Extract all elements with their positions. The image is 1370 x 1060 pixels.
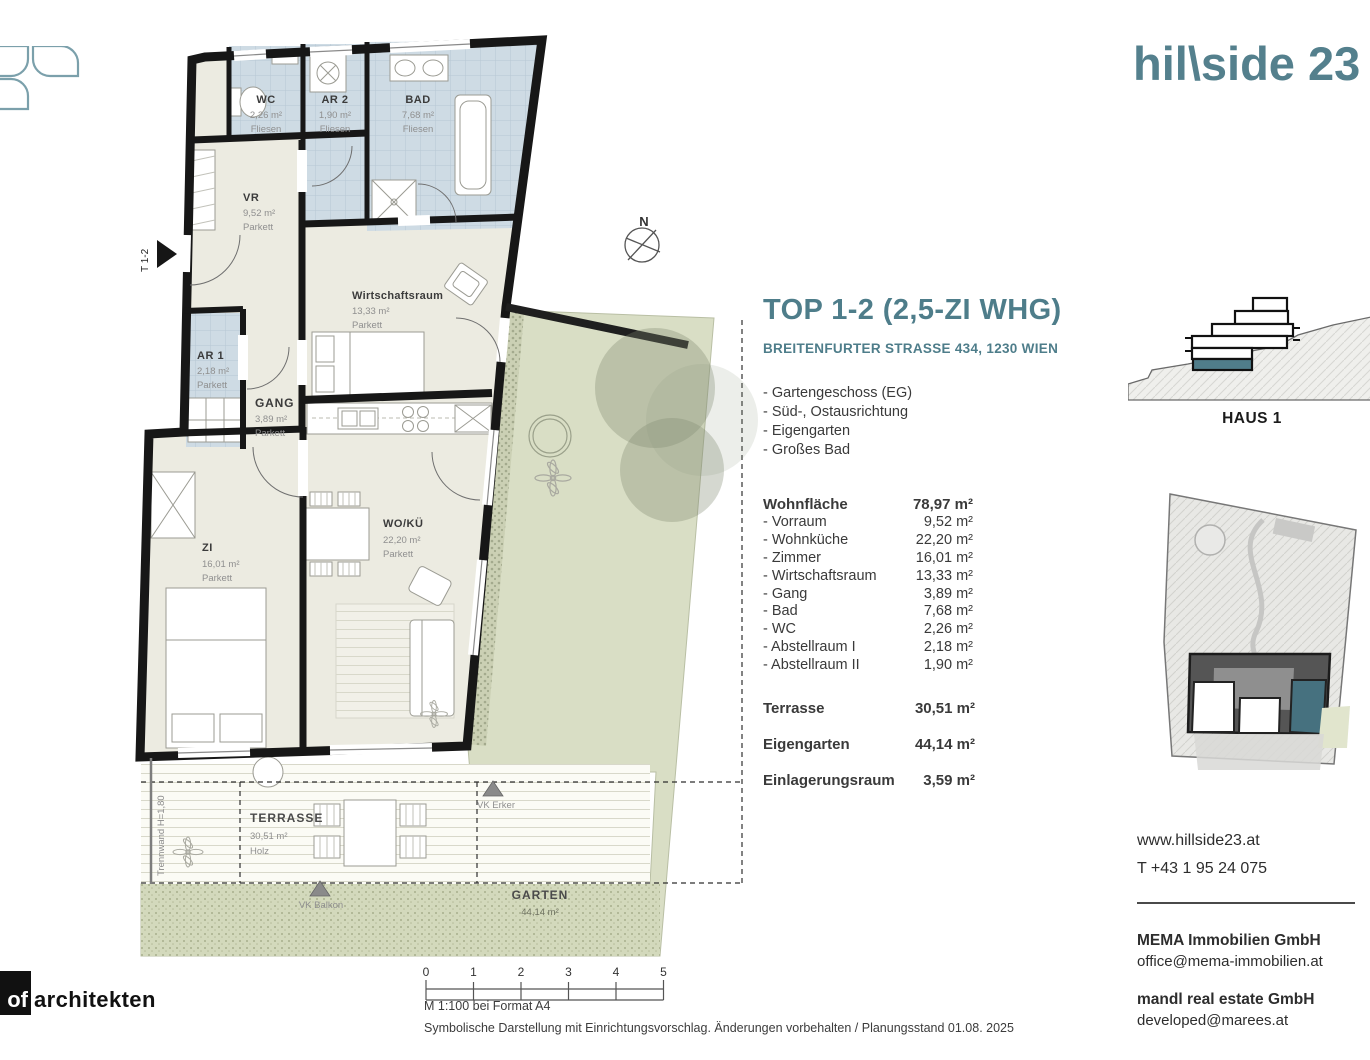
architect-logo-box: of — [0, 971, 31, 1015]
svg-text:Fliesen: Fliesen — [320, 124, 351, 135]
svg-text:Parkett: Parkett — [243, 222, 273, 233]
unit-title: TOP 1-2 (2,5-ZI WHG) — [763, 294, 1095, 327]
website: www.hillside23.at — [1137, 832, 1370, 850]
fridge — [455, 405, 491, 432]
floor-box — [1212, 324, 1293, 336]
unit-details-panel: TOP 1-2 (2,5-ZI WHG) BREITENFURTER STRAS… — [763, 294, 1095, 808]
svg-text:GANG: GANG — [255, 396, 294, 410]
svg-text:Holz: Holz — [250, 846, 269, 857]
svg-text:2,18 m²: 2,18 m² — [197, 366, 229, 377]
area-row: - Wohnküche22,20 m² — [763, 532, 973, 550]
svg-text:Parkett: Parkett — [352, 320, 382, 331]
svg-text:3: 3 — [565, 965, 572, 979]
svg-text:1,90 m²: 1,90 m² — [319, 110, 351, 121]
svg-text:0: 0 — [423, 965, 430, 979]
unit-address: BREITENFURTER STRASSE 434, 1230 WIEN — [763, 341, 1095, 356]
feature-item: - Großes Bad — [763, 441, 1095, 460]
svg-text:ZI: ZI — [202, 542, 213, 554]
trennwand-label: Trennwand H=1,80 — [156, 795, 167, 876]
kitchen-counter — [307, 403, 492, 434]
unit-shape — [1239, 698, 1280, 733]
hillside23-logo: hil\side 23 — [1133, 36, 1360, 91]
highlighted-floor — [1193, 359, 1252, 370]
svg-text:VK Erker: VK Erker — [477, 800, 515, 811]
unit-shape — [1192, 682, 1234, 732]
floor-box — [1235, 311, 1288, 324]
architect-logo: of architekten — [0, 971, 156, 1015]
haus1-section-diagram — [1128, 288, 1370, 406]
floorplan-drawing: N T 1-2 VK Erker VK Balkon Trennwand H=1… — [0, 0, 760, 1060]
svg-text:22,20 m²: 22,20 m² — [383, 535, 421, 546]
svg-text:Fliesen: Fliesen — [403, 124, 434, 135]
svg-text:Parkett: Parkett — [202, 573, 232, 584]
contact-block: www.hillside23.at T +43 1 95 24 075 MEMA… — [1137, 832, 1370, 1050]
company-name: mandl real estate GmbH — [1137, 991, 1370, 1009]
area-row: - Gang3,89 m² — [763, 586, 973, 604]
company-email: developed@marees.at — [1137, 1012, 1370, 1029]
divider — [1137, 902, 1355, 904]
svg-text:WC: WC — [256, 94, 275, 106]
company-email: office@mema-immobilien.at — [1137, 953, 1370, 970]
floor-box — [1192, 336, 1287, 348]
svg-text:Parkett: Parkett — [383, 549, 413, 560]
svg-text:44,14 m²: 44,14 m² — [521, 907, 559, 918]
area-table: Wohnfläche 78,97 m² - Vorraum9,52 m² - W… — [763, 496, 973, 675]
area-row: - Zimmer16,01 m² — [763, 550, 973, 568]
svg-text:Fliesen: Fliesen — [251, 124, 282, 135]
svg-text:TERRASSE: TERRASSE — [250, 811, 323, 825]
area-row: - Abstellraum II1,90 m² — [763, 657, 973, 675]
company-name: MEMA Immobilien GmbH — [1137, 932, 1370, 950]
extra-row: Terrasse30,51 m² — [763, 700, 975, 717]
svg-text:BAD: BAD — [405, 94, 430, 106]
area-row: - Abstellraum I2,18 m² — [763, 639, 973, 657]
phone: T +43 1 95 24 075 — [1137, 860, 1370, 878]
extra-row: Eigengarten44,14 m² — [763, 736, 975, 753]
extra-row: Einlagerungsraum3,59 m² — [763, 772, 975, 789]
svg-text:WO/KÜ: WO/KÜ — [383, 517, 423, 530]
entry-label: T 1-2 — [140, 248, 151, 272]
svg-text:2,26 m²: 2,26 m² — [250, 110, 282, 121]
svg-text:13,33 m²: 13,33 m² — [352, 306, 390, 317]
svg-text:VR: VR — [243, 192, 259, 204]
feature-item: - Süd-, Ostausrichtung — [763, 403, 1095, 422]
dresser — [151, 472, 195, 538]
entry-marker: T 1-2 — [140, 240, 177, 272]
disclaimer: Symbolische Darstellung mit Einrichtungs… — [424, 1021, 1014, 1035]
north-label: N — [639, 214, 648, 229]
svg-text:AR 2: AR 2 — [321, 94, 348, 106]
room-label-bad: BAD 7,68 m² Fliesen — [402, 94, 434, 135]
bed — [312, 332, 424, 396]
svg-text:VK Balkon: VK Balkon — [299, 900, 343, 911]
area-row: - Vorraum9,52 m² — [763, 514, 973, 532]
north-arrow: N — [625, 214, 660, 262]
room-label-ar2: AR 2 1,90 m² Fliesen — [319, 94, 351, 135]
svg-text:3,89 m²: 3,89 m² — [255, 414, 287, 425]
washing-machine — [310, 54, 346, 92]
svg-text:GARTEN: GARTEN — [512, 888, 569, 902]
feature-list: - Gartengeschoss (EG) - Süd-, Ostausrich… — [763, 384, 1095, 460]
floorplan-sheet: N T 1-2 VK Erker VK Balkon Trennwand H=1… — [0, 0, 1370, 1060]
floor-box — [1192, 348, 1252, 359]
svg-text:1: 1 — [470, 965, 477, 979]
extra-areas: Terrasse30,51 m² Eigengarten44,14 m² Ein… — [763, 700, 975, 789]
svg-text:Parkett: Parkett — [197, 380, 227, 391]
area-table-header: Wohnfläche 78,97 m² — [763, 496, 973, 514]
bathtub — [455, 95, 491, 195]
svg-text:7,68 m²: 7,68 m² — [402, 110, 434, 121]
pond — [1195, 525, 1225, 555]
svg-text:4: 4 — [613, 965, 620, 979]
scale-note: M 1:100 bei Format A4 — [424, 999, 550, 1013]
svg-text:30,51 m²: 30,51 m² — [250, 831, 288, 842]
feature-item: - Gartengeschoss (EG) — [763, 384, 1095, 403]
siteplan-keymap — [1158, 482, 1368, 774]
area-row: - Wirtschaftsraum13,33 m² — [763, 568, 973, 586]
svg-text:Wirtschaftsraum: Wirtschaftsraum — [352, 290, 443, 302]
svg-text:5: 5 — [660, 965, 667, 979]
svg-text:Parkett: Parkett — [255, 428, 285, 439]
svg-text:16,01 m²: 16,01 m² — [202, 559, 240, 570]
svg-text:2: 2 — [518, 965, 525, 979]
area-row: - WC2,26 m² — [763, 621, 973, 639]
haus1-caption: HAUS 1 — [1128, 410, 1370, 428]
architect-logo-text: architekten — [34, 987, 156, 1015]
floor-box — [1253, 298, 1287, 311]
svg-text:AR 1: AR 1 — [197, 350, 224, 362]
double-washbasin — [390, 55, 448, 81]
svg-text:9,52 m²: 9,52 m² — [243, 208, 275, 219]
double-bed — [166, 588, 266, 748]
area-row: - Bad7,68 m² — [763, 603, 973, 621]
feature-item: - Eigengarten — [763, 422, 1095, 441]
